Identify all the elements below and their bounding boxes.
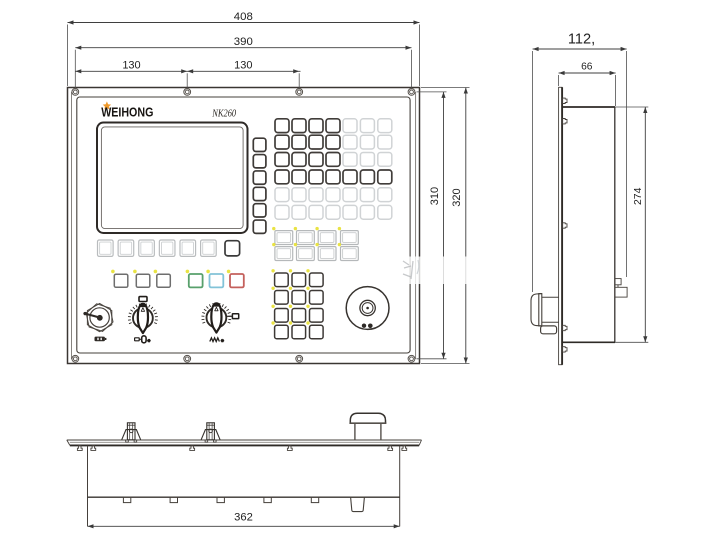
svg-text:320: 320 [451,188,463,206]
svg-text:66: 66 [581,61,593,72]
svg-text:112,: 112, [568,32,595,48]
svg-text:WEIHONG: WEIHONG [101,104,153,119]
svg-text:408: 408 [234,11,253,23]
svg-text:390: 390 [234,36,253,48]
svg-text:274: 274 [633,187,644,205]
svg-text:362: 362 [234,512,253,524]
svg-text:310: 310 [429,187,441,205]
svg-text:130: 130 [122,60,140,72]
svg-text:NK260: NK260 [211,108,236,119]
svg-text:130: 130 [234,60,252,72]
